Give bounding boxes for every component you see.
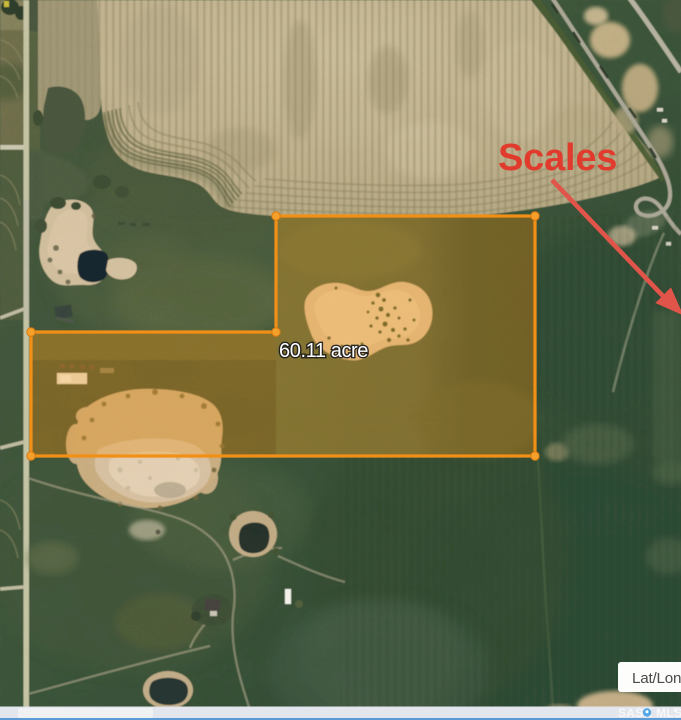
svg-text:60.11 acre: 60.11 acre <box>279 340 368 362</box>
svg-text:®: ® <box>673 707 678 714</box>
svg-text:Scales: Scales <box>498 137 617 179</box>
svg-text:Lat/Lon: Lat/Lon <box>632 670 681 687</box>
